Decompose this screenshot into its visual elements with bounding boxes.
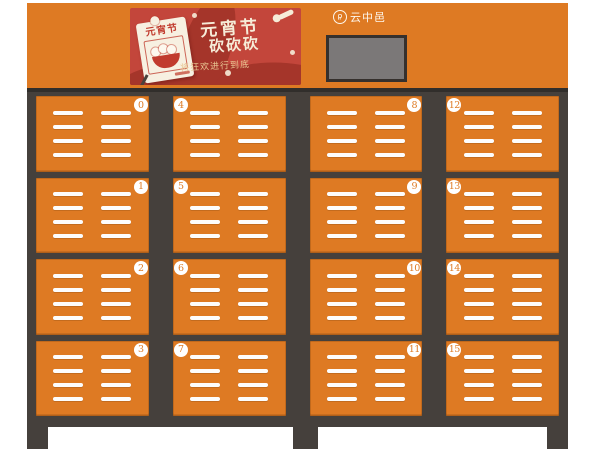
vent-lines: [53, 274, 131, 320]
locker-number-badge: 9: [407, 180, 421, 194]
locker-door-14[interactable]: 14: [446, 259, 559, 335]
spoon-icon: [278, 9, 295, 20]
locker-door-15[interactable]: 15: [446, 341, 559, 417]
cabinet-header: 元宵节 元宵节 砍砍砍 将狂欢: [27, 3, 568, 88]
locker-number-badge: 2: [134, 261, 148, 275]
locker-door-12[interactable]: 12: [446, 96, 559, 172]
page: 元宵节 元宵节 砍砍砍 将狂欢: [0, 0, 600, 450]
locker-number-badge: 8: [407, 98, 421, 112]
cabinet-leg-middle: [293, 427, 318, 449]
locker-number-badge: 13: [447, 180, 461, 194]
confetti-dot: [290, 50, 295, 55]
vent-lines: [327, 355, 405, 401]
locker-number-badge: 1: [134, 180, 148, 194]
locker-grid: 0123456789101112131415: [36, 96, 559, 416]
vent-lines: [327, 111, 405, 157]
locker-number-badge: 11: [407, 343, 421, 357]
locker-door-0[interactable]: 0: [36, 96, 149, 172]
locker-number-badge: 12: [447, 98, 461, 112]
banner-title-line2: 砍砍砍: [208, 32, 260, 57]
pin-dot: [150, 16, 160, 26]
locker-cabinet: 元宵节 元宵节 砍砍砍 将狂欢: [27, 3, 568, 449]
locker-door-3[interactable]: 3: [36, 341, 149, 417]
locker-number-badge: 10: [407, 261, 421, 275]
locker-door-2[interactable]: 2: [36, 259, 149, 335]
brand-seal-icon: [333, 10, 347, 24]
locker-number-badge: 3: [134, 343, 148, 357]
locker-door-1[interactable]: 1: [36, 178, 149, 254]
locker-number-badge: 6: [174, 261, 188, 275]
vent-lines: [327, 192, 405, 238]
brand-name: 云中邑: [350, 9, 386, 25]
display-screen[interactable]: [326, 35, 407, 82]
locker-number-badge: 15: [447, 343, 461, 357]
promo-banner: 元宵节 元宵节 砍砍砍 将狂欢: [130, 8, 301, 85]
cabinet-leg-right: [547, 427, 568, 449]
locker-door-13[interactable]: 13: [446, 178, 559, 254]
vent-lines: [190, 111, 268, 157]
locker-door-5[interactable]: 5: [173, 178, 286, 254]
locker-door-10[interactable]: 10: [310, 259, 423, 335]
vent-lines: [190, 192, 268, 238]
locker-door-7[interactable]: 7: [173, 341, 286, 417]
vent-lines: [190, 274, 268, 320]
locker-number-badge: 5: [174, 180, 188, 194]
vent-lines: [327, 274, 405, 320]
locker-number-badge: 0: [134, 98, 148, 112]
vent-lines: [53, 355, 131, 401]
vent-lines: [53, 192, 131, 238]
vent-lines: [464, 192, 542, 238]
locker-door-6[interactable]: 6: [173, 259, 286, 335]
locker-door-11[interactable]: 11: [310, 341, 423, 417]
locker-number-badge: 7: [174, 343, 188, 357]
locker-door-8[interactable]: 8: [310, 96, 423, 172]
locker-door-9[interactable]: 9: [310, 178, 423, 254]
vent-lines: [464, 274, 542, 320]
locker-number-badge: 14: [447, 261, 461, 275]
cabinet-leg-left: [27, 427, 48, 449]
locker-number-badge: 4: [174, 98, 188, 112]
locker-door-4[interactable]: 4: [173, 96, 286, 172]
cabinet-frame: 0123456789101112131415: [27, 88, 568, 427]
vent-lines: [190, 355, 268, 401]
vent-lines: [464, 355, 542, 401]
confetti-dot: [192, 13, 197, 18]
vent-lines: [464, 111, 542, 157]
brand-logo: 云中邑: [333, 9, 386, 25]
vent-lines: [53, 111, 131, 157]
